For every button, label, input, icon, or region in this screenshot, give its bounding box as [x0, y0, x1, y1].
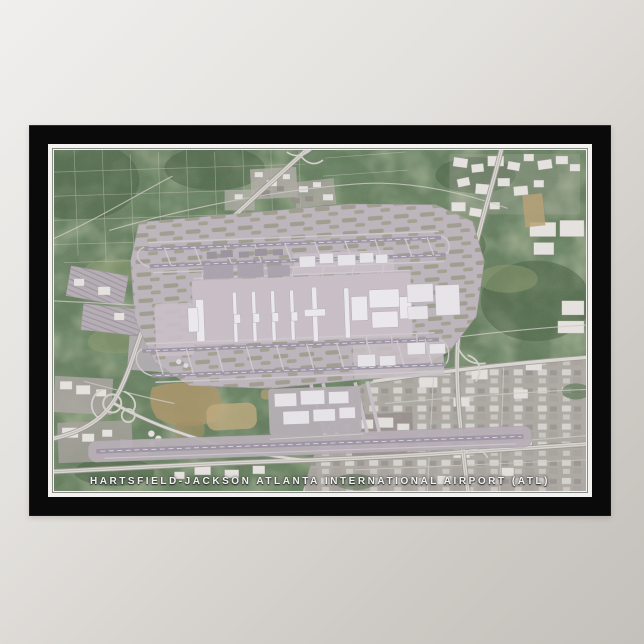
poster-frame: HARTSFIELD-JACKSON ATLANTA INTERNATIONAL… [29, 125, 611, 516]
wall: HARTSFIELD-JACKSON ATLANTA INTERNATIONAL… [0, 0, 644, 644]
poster-mat: HARTSFIELD-JACKSON ATLANTA INTERNATIONAL… [48, 144, 592, 497]
satellite-map: HARTSFIELD-JACKSON ATLANTA INTERNATIONAL… [54, 150, 586, 491]
grain-overlay [54, 150, 586, 491]
poster-caption: HARTSFIELD-JACKSON ATLANTA INTERNATIONAL… [54, 476, 586, 489]
airport-satellite-image [54, 150, 586, 491]
poster-mat-inner-line: HARTSFIELD-JACKSON ATLANTA INTERNATIONAL… [52, 148, 588, 493]
